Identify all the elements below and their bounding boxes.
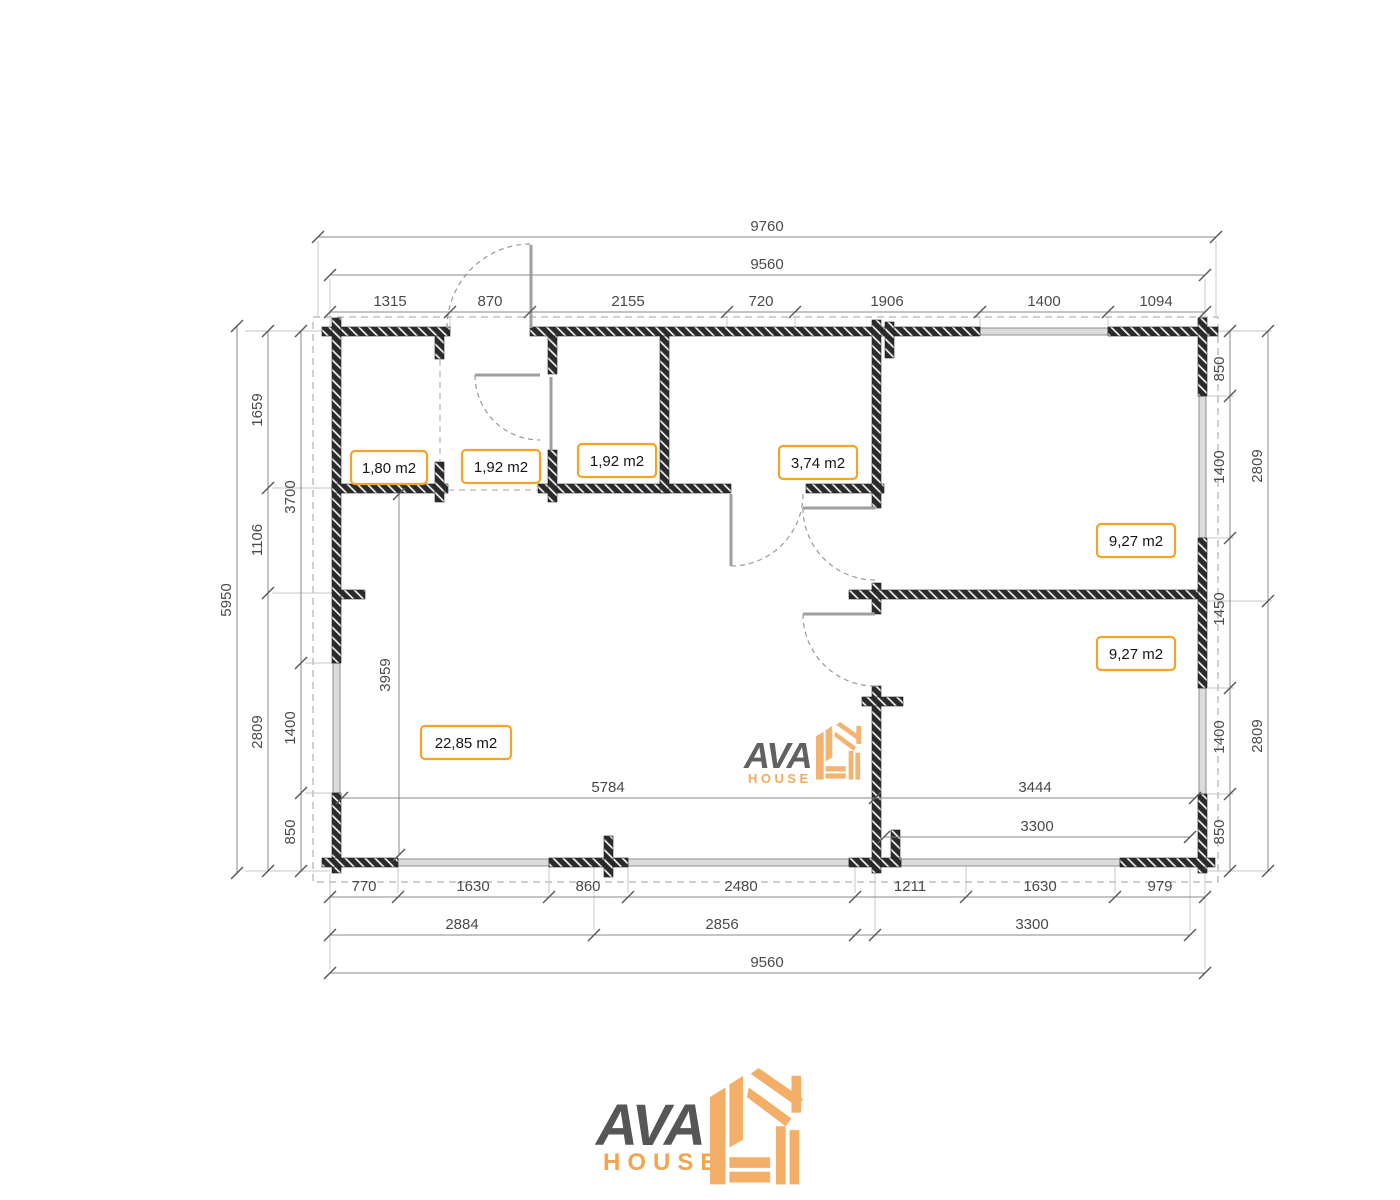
window-right-upper	[1199, 396, 1206, 538]
room-label-hall: 1,92 m2	[578, 444, 656, 477]
dim-interior-bedroom-width: 3300	[1020, 818, 1053, 835]
dim-left-total: 5950	[218, 583, 235, 616]
watermark-logo: AVA HOUSE	[743, 722, 862, 786]
room-area-text: 3,74 m2	[791, 455, 845, 472]
door-leaves	[475, 245, 875, 614]
dim-bottom-seg-4: 1211	[894, 878, 926, 895]
room-area-text: 9,27 m2	[1109, 533, 1163, 550]
dim-bottom-seg-1: 1630	[456, 878, 489, 895]
room-label-bathroom: 3,74 m2	[779, 446, 857, 479]
dim-top-seg-6: 1094	[1139, 293, 1172, 310]
dim-top-seg-2: 2155	[611, 293, 644, 310]
dim-bottom-chain-2: 3300	[1015, 916, 1048, 933]
dim-left-outer-0: 3700	[282, 480, 299, 513]
room1-door-arc	[803, 508, 875, 580]
window-top	[980, 328, 1108, 335]
vestibule-door-arc	[475, 375, 540, 440]
room2-door-arc	[803, 614, 875, 686]
dim-top-seg-0: 1315	[373, 293, 406, 310]
room-label-bedroom-1: 9,27 m2	[1097, 524, 1175, 557]
dim-interior-living-height: 3959	[377, 658, 394, 691]
room-area-text: 22,85 m2	[435, 735, 498, 752]
dim-left-inner-0: 1659	[249, 393, 266, 426]
entrance-door-arc	[447, 244, 531, 328]
roof-overhang-outline	[313, 317, 1218, 882]
window-bottom-middle	[628, 859, 849, 866]
dim-bottom-chain-1: 2856	[705, 916, 738, 933]
window-bottom-right	[901, 859, 1120, 866]
dim-bottom-seg-2: 860	[575, 878, 600, 895]
room-area-text: 1,92 m2	[474, 459, 528, 476]
room-label-vestibule: 1,92 m2	[462, 450, 540, 483]
room-label-living: 22,85 m2	[421, 726, 511, 759]
dim-left-inner-2: 2809	[249, 715, 266, 748]
dim-top-seg-1: 870	[477, 293, 502, 310]
dim-bottom-seg-6: 979	[1147, 878, 1172, 895]
watermark-house-icon	[816, 722, 862, 780]
walls	[322, 318, 1218, 877]
watermark-brand-text: AVA	[743, 735, 812, 776]
dim-left-outer-2: 850	[282, 819, 299, 844]
window-right-lower	[1199, 688, 1206, 794]
hall-door-arc	[731, 494, 803, 566]
dim-right-outer-1: 2809	[1249, 719, 1266, 752]
dim-right-chain-4: 850	[1211, 819, 1228, 844]
room-area-text: 1,92 m2	[590, 453, 644, 470]
dim-top-inner: 9560	[750, 256, 783, 273]
dim-left-inner-1: 1106	[249, 524, 266, 556]
room-area-text: 9,27 m2	[1109, 646, 1163, 663]
footer-logo: AVA HOUSE	[594, 1068, 803, 1184]
dim-bottom-total: 9560	[750, 954, 783, 971]
room-area-text: 1,80 m2	[362, 460, 416, 477]
dim-right-chain-1: 1400	[1211, 450, 1228, 483]
footer-sub-text: HOUSE	[603, 1149, 723, 1176]
dim-bottom-seg-0: 770	[351, 878, 376, 895]
dim-right-outer-0: 2809	[1249, 449, 1266, 482]
dim-left-outer-1: 1400	[282, 711, 299, 744]
dim-top-seg-4: 1906	[870, 293, 903, 310]
window-left	[333, 663, 340, 793]
dim-top-seg-5: 1400	[1027, 293, 1060, 310]
dim-interior-living-width: 5784	[591, 779, 624, 796]
dim-right-chain-0: 850	[1211, 356, 1228, 381]
room-area-labels: 1,80 m2 1,92 m2 1,92 m2 3,74 m2 9,27 m2 …	[351, 444, 1175, 759]
dim-bottom-chain-0: 2884	[445, 916, 478, 933]
dim-right-chain-3: 1400	[1211, 720, 1228, 753]
floor-plan-page: 9760 9560 1315 870 2155 720 1906 1400 10…	[0, 0, 1400, 1200]
watermark-sub-text: HOUSE	[748, 771, 812, 786]
room-label-bedroom-2: 9,27 m2	[1097, 637, 1175, 670]
dim-interior-right-width: 3444	[1018, 779, 1051, 796]
dim-bottom-seg-3: 2480	[724, 878, 757, 895]
room-label-wardrobe: 1,80 m2	[351, 451, 427, 484]
dim-top-seg-3: 720	[748, 293, 773, 310]
dim-right-chain-2: 1450	[1211, 592, 1228, 625]
footer-house-icon	[710, 1068, 803, 1184]
dim-top-outer: 9760	[750, 218, 783, 235]
floor-plan-canvas: 9760 9560 1315 870 2155 720 1906 1400 10…	[0, 0, 1400, 1200]
dim-bottom-seg-5: 1630	[1023, 878, 1056, 895]
window-bottom-left	[398, 859, 549, 866]
